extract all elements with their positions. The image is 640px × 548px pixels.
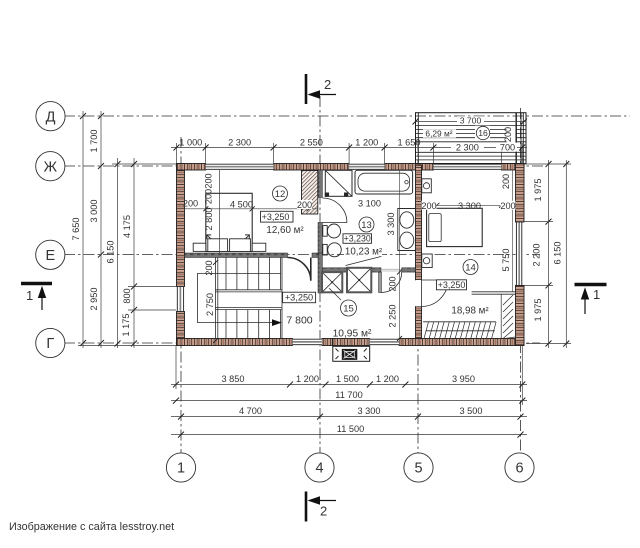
svg-text:200: 200 <box>297 200 312 210</box>
svg-text:18,98 м²: 18,98 м² <box>451 306 489 317</box>
svg-text:800: 800 <box>122 288 132 303</box>
svg-text:200: 200 <box>501 174 511 189</box>
svg-text:3 500: 3 500 <box>460 406 483 416</box>
svg-text:1 200: 1 200 <box>376 374 399 384</box>
svg-text:1 000: 1 000 <box>179 138 202 148</box>
svg-text:4 700: 4 700 <box>239 406 262 416</box>
svg-text:3 300: 3 300 <box>358 406 381 416</box>
svg-text:6,29 м²: 6,29 м² <box>425 129 452 139</box>
svg-text:2 300: 2 300 <box>456 142 479 152</box>
svg-text:11 700: 11 700 <box>335 390 362 400</box>
svg-text:3 300: 3 300 <box>458 201 481 211</box>
svg-text:200: 200 <box>503 127 513 142</box>
svg-text:1 650: 1 650 <box>398 138 421 148</box>
svg-text:12,60 м²: 12,60 м² <box>266 225 304 236</box>
svg-text:2 750: 2 750 <box>205 293 215 316</box>
svg-text:Д: Д <box>46 109 56 125</box>
svg-text:3 000: 3 000 <box>89 200 99 223</box>
svg-text:1 975: 1 975 <box>533 179 543 202</box>
svg-text:4 175: 4 175 <box>122 215 132 238</box>
svg-text:2: 2 <box>320 504 327 519</box>
svg-text:5 750: 5 750 <box>501 249 511 272</box>
svg-text:3 950: 3 950 <box>452 374 475 384</box>
svg-text:14: 14 <box>465 263 476 274</box>
svg-text:700: 700 <box>500 142 515 152</box>
svg-text:1 200: 1 200 <box>296 374 319 384</box>
svg-text:2 800: 2 800 <box>204 208 214 231</box>
svg-text:1 175: 1 175 <box>121 314 131 337</box>
svg-text:1: 1 <box>177 461 185 477</box>
svg-text:Е: Е <box>45 248 55 264</box>
svg-text:2 300: 2 300 <box>228 138 251 148</box>
svg-text:1: 1 <box>26 288 33 303</box>
svg-text:4 500: 4 500 <box>230 200 253 210</box>
svg-text:200: 200 <box>183 199 198 209</box>
svg-text:+3,230: +3,230 <box>344 234 371 244</box>
svg-text:+3,250: +3,250 <box>262 212 290 222</box>
svg-text:6 150: 6 150 <box>553 242 563 265</box>
svg-text:1 500: 1 500 <box>336 374 359 384</box>
svg-text:2 250: 2 250 <box>388 305 398 328</box>
svg-text:3 300: 3 300 <box>386 213 396 236</box>
svg-text:1 700: 1 700 <box>89 130 99 153</box>
svg-text:200: 200 <box>500 201 515 211</box>
svg-text:11 500: 11 500 <box>337 424 364 434</box>
svg-text:5: 5 <box>414 461 422 477</box>
svg-text:2 950: 2 950 <box>89 288 99 311</box>
svg-text:1 975: 1 975 <box>533 299 543 322</box>
svg-text:6 150: 6 150 <box>106 241 116 264</box>
svg-text:1 200: 1 200 <box>355 138 378 148</box>
svg-text:1: 1 <box>593 287 600 302</box>
svg-text:200: 200 <box>204 173 214 188</box>
svg-text:Г: Г <box>46 336 54 352</box>
svg-text:2 550: 2 550 <box>300 138 323 148</box>
svg-text:6: 6 <box>515 461 523 477</box>
svg-text:3 850: 3 850 <box>222 374 245 384</box>
svg-text:2 200: 2 200 <box>532 244 542 267</box>
svg-text:2: 2 <box>324 77 331 92</box>
svg-text:7 800: 7 800 <box>286 315 312 327</box>
svg-text:13: 13 <box>361 220 372 231</box>
svg-text:16: 16 <box>478 128 488 138</box>
svg-text:+3,250: +3,250 <box>438 280 466 290</box>
svg-text:7 650: 7 650 <box>71 218 81 241</box>
svg-text:15: 15 <box>343 304 354 315</box>
svg-text:Изображение с сайта lesstroy.n: Изображение с сайта lesstroy.net <box>9 521 174 533</box>
svg-text:10,95 м²: 10,95 м² <box>333 329 372 340</box>
svg-text:Ж: Ж <box>44 159 58 175</box>
svg-text:10,23 м²: 10,23 м² <box>345 247 383 258</box>
svg-text:200: 200 <box>204 260 214 275</box>
svg-text:12: 12 <box>275 189 286 200</box>
svg-text:200: 200 <box>204 189 214 204</box>
svg-text:3 700: 3 700 <box>460 116 482 126</box>
svg-text:200: 200 <box>388 276 398 291</box>
svg-text:4: 4 <box>315 461 323 477</box>
svg-text:200: 200 <box>421 201 436 211</box>
svg-text:+3,250: +3,250 <box>285 293 313 303</box>
svg-text:3 100: 3 100 <box>358 199 381 209</box>
